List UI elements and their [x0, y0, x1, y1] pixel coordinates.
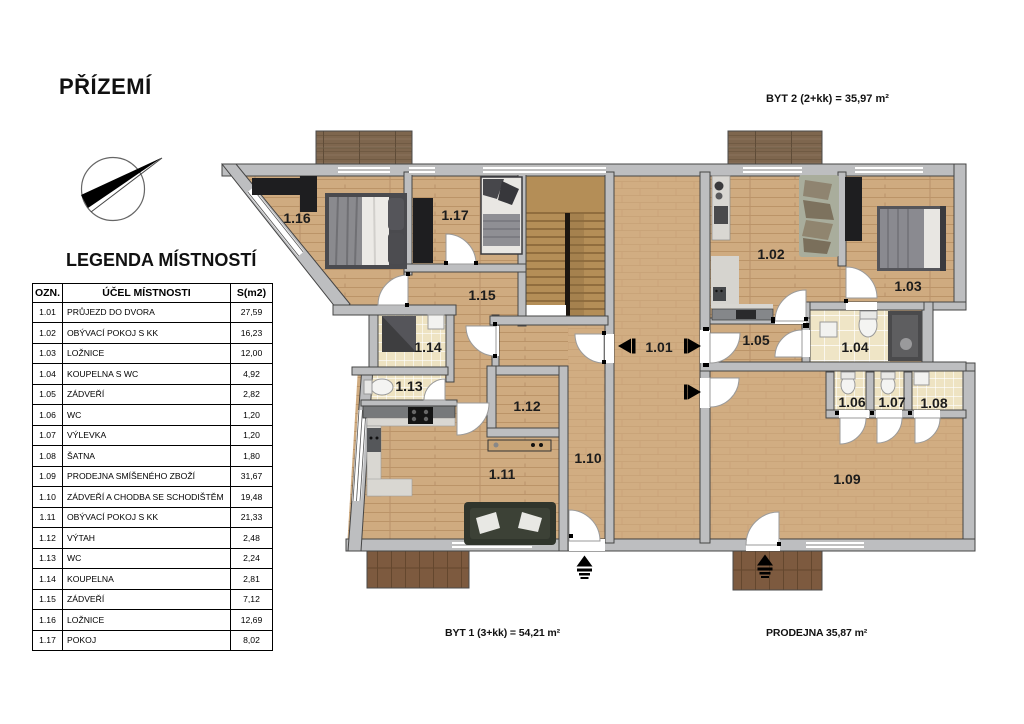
svg-text:1.05: 1.05	[742, 332, 769, 348]
svg-text:1.10: 1.10	[574, 450, 601, 466]
svg-text:1.11: 1.11	[489, 466, 516, 482]
svg-text:1.02: 1.02	[757, 246, 784, 262]
svg-text:1.07: 1.07	[878, 394, 905, 410]
svg-text:1.13: 1.13	[395, 378, 422, 394]
svg-text:1.08: 1.08	[920, 395, 947, 411]
svg-text:1.01: 1.01	[645, 339, 672, 355]
svg-text:1.17: 1.17	[441, 207, 468, 223]
svg-text:1.03: 1.03	[894, 278, 921, 294]
svg-text:1.15: 1.15	[468, 287, 495, 303]
svg-text:1.12: 1.12	[513, 398, 540, 414]
svg-text:1.04: 1.04	[841, 339, 868, 355]
svg-text:1.16: 1.16	[283, 210, 310, 226]
svg-text:1.09: 1.09	[833, 471, 860, 487]
svg-text:1.14: 1.14	[414, 339, 441, 355]
svg-text:1.06: 1.06	[838, 394, 865, 410]
